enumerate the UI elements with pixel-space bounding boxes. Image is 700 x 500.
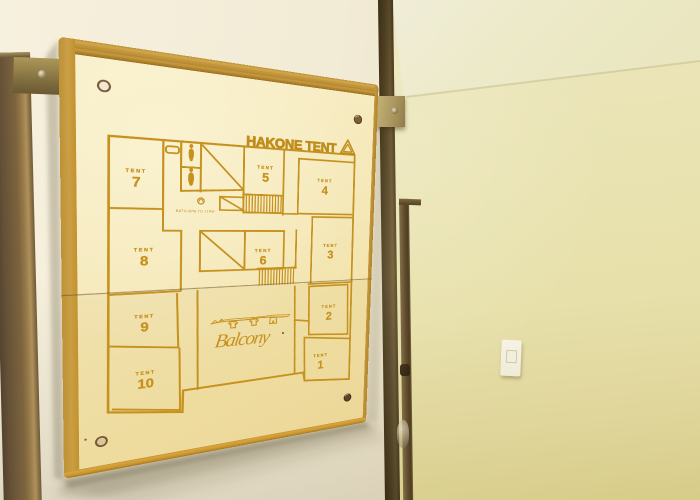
svg-text:9: 9 [140, 319, 149, 335]
svg-text:1: 1 [317, 358, 324, 372]
svg-text:4: 4 [322, 183, 329, 197]
svg-text:2: 2 [326, 309, 332, 322]
svg-text:3: 3 [327, 248, 334, 261]
svg-text:8: 8 [140, 253, 149, 269]
svg-text:HAKONE TENT: HAKONE TENT [246, 133, 337, 155]
svg-text:BATH 9PM TO 11PM: BATH 9PM TO 11PM [176, 209, 215, 214]
svg-text:6: 6 [260, 253, 267, 267]
svg-text:5: 5 [262, 170, 269, 185]
svg-text:7: 7 [132, 174, 141, 190]
svg-text:10: 10 [137, 375, 154, 392]
